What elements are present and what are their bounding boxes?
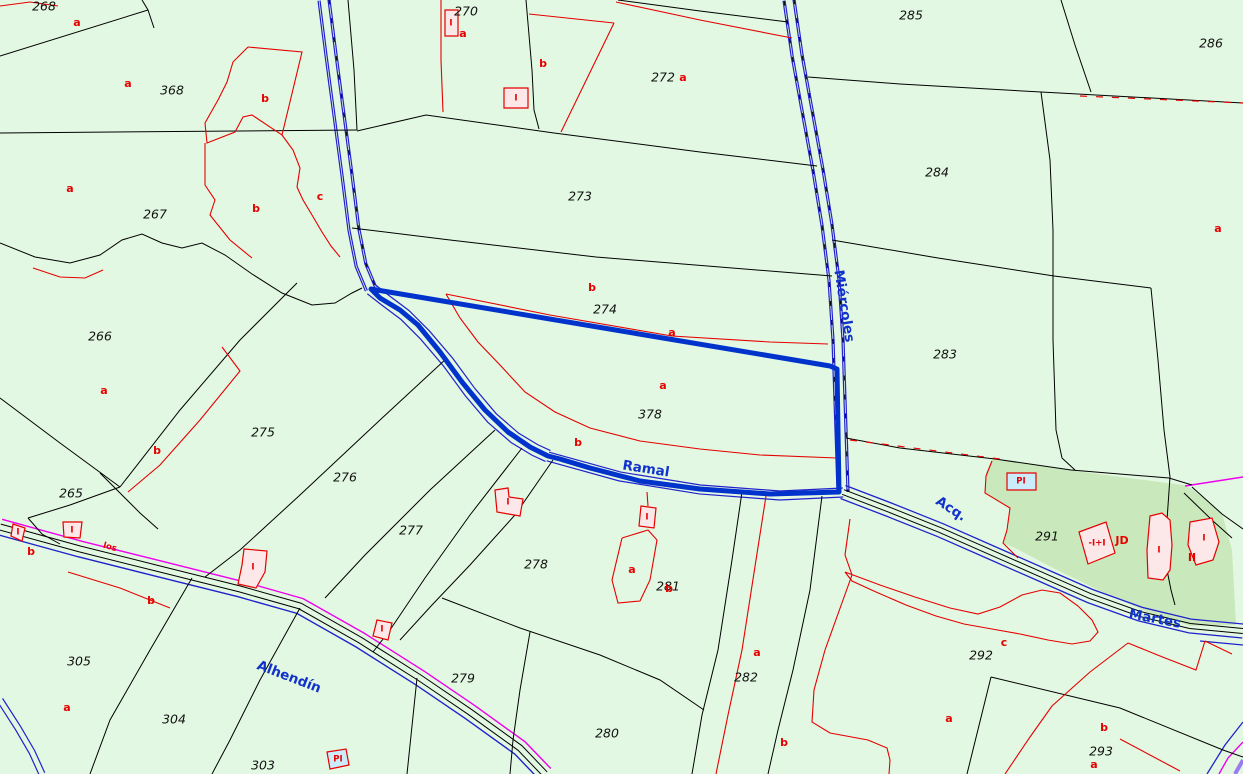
subparcel-letter: b — [27, 545, 35, 558]
parcel-label-272[interactable]: 272 — [651, 70, 675, 85]
subparcel-letter: JD — [1114, 534, 1128, 547]
parcel-label-303[interactable]: 303 — [251, 758, 275, 773]
parcel-label-286[interactable]: 286 — [1199, 36, 1223, 51]
building-label: I — [251, 563, 254, 573]
building-label: PI — [1016, 477, 1025, 487]
parcel-label-270[interactable]: 270 — [454, 4, 478, 19]
subparcel-letter: b — [539, 57, 547, 70]
building-label: I — [449, 19, 452, 29]
subparcel-letter: b — [574, 436, 582, 449]
parcel-label-291[interactable]: 291 — [1035, 529, 1059, 544]
parcel-label-267[interactable]: 267 — [143, 207, 167, 222]
subparcel-letter: a — [63, 701, 70, 714]
subparcel-letter: a — [73, 16, 80, 29]
subparcel-letter: b — [588, 281, 596, 294]
map-svg[interactable]: IIIIIIIIPI-I+IIIPI2683682702722852862672… — [0, 0, 1243, 774]
parcel-label-284[interactable]: 284 — [925, 165, 949, 180]
parcel-label-368[interactable]: 368 — [160, 83, 184, 98]
subparcel-letter: a — [668, 326, 675, 339]
subparcel-letter: a — [753, 646, 760, 659]
building-label: I — [16, 528, 19, 538]
parcel-label-378[interactable]: 378 — [638, 407, 662, 422]
subparcel-letter: b — [252, 202, 260, 215]
parcel-label-268[interactable]: 268 — [32, 0, 56, 14]
subparcel-letter: b — [153, 444, 161, 457]
cadastral-map-canvas[interactable]: IIIIIIIIPI-I+IIIPI2683682702722852862672… — [0, 0, 1243, 774]
building-label: I — [380, 625, 383, 635]
building-label: I — [70, 526, 73, 536]
parcel-label-304[interactable]: 304 — [162, 712, 186, 727]
parcel-label-305[interactable]: 305 — [67, 654, 91, 669]
parcel-label-266[interactable]: 266 — [88, 329, 112, 344]
subparcel-letter: b — [665, 582, 673, 595]
subparcel-letter: a — [659, 379, 666, 392]
parcel-label-292[interactable]: 292 — [969, 648, 993, 663]
parcel-label-280[interactable]: 280 — [595, 726, 619, 741]
subparcel-letter: a — [1090, 758, 1097, 771]
building-label: I — [514, 94, 517, 104]
parcel-label-276[interactable]: 276 — [333, 470, 357, 485]
building-label: PI — [333, 755, 342, 765]
parcel-label-277[interactable]: 277 — [399, 523, 423, 538]
subparcel-letter: c — [1001, 636, 1008, 649]
building-label: I — [1202, 534, 1205, 544]
subparcel-letter: a — [66, 182, 73, 195]
building-label: I — [1157, 546, 1160, 556]
subparcel-letter: a — [459, 27, 466, 40]
parcel-label-283[interactable]: 283 — [933, 347, 957, 362]
subparcel-letter: c — [317, 190, 324, 203]
parcel-label-285[interactable]: 285 — [899, 8, 923, 23]
building-label: I — [645, 513, 648, 523]
subparcel-letter: b — [147, 594, 155, 607]
parcel-label-265[interactable]: 265 — [59, 486, 83, 501]
subparcel-letter: b — [780, 736, 788, 749]
parcel-label-278[interactable]: 278 — [524, 557, 548, 572]
subparcel-letter: b — [1100, 721, 1108, 734]
parcel-label-273[interactable]: 273 — [568, 189, 592, 204]
map-background — [0, 0, 1243, 774]
parcel-label-275[interactable]: 275 — [251, 425, 275, 440]
subparcel-letter: a — [1214, 222, 1221, 235]
subparcel-letter: a — [628, 563, 635, 576]
subparcel-letter: a — [945, 712, 952, 725]
parcel-label-282[interactable]: 282 — [734, 670, 758, 685]
subparcel-letter: a — [679, 71, 686, 84]
building-label: I — [506, 498, 509, 508]
parcel-label-293[interactable]: 293 — [1089, 744, 1113, 759]
parcel-label-279[interactable]: 279 — [451, 671, 475, 686]
building-label: -I+I — [1089, 539, 1106, 549]
subparcel-letter: a — [124, 77, 131, 90]
subparcel-letter: II — [1188, 551, 1196, 564]
parcel-label-274[interactable]: 274 — [593, 302, 617, 317]
subparcel-letter: b — [261, 92, 269, 105]
subparcel-letter: a — [100, 384, 107, 397]
